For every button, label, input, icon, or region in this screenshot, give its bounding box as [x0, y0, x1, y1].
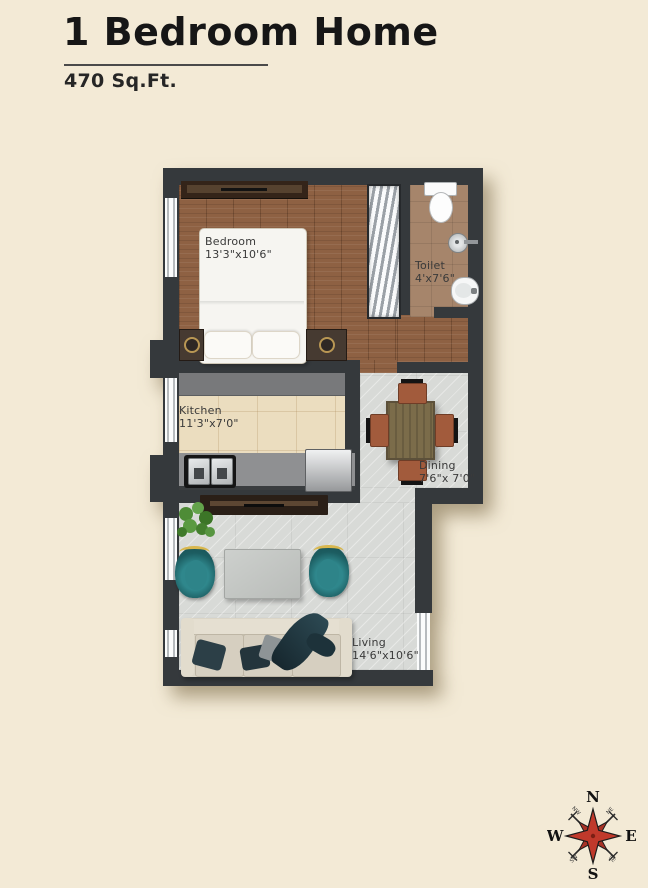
potted-plant: [176, 502, 220, 542]
compass-center: [591, 834, 595, 838]
compass-southeast-label: SE: [607, 855, 617, 865]
dining-chair-top: [398, 383, 427, 404]
dining-chair-left: [370, 414, 389, 447]
passage-floor: [397, 315, 468, 362]
wall-pillar-left-upper: [150, 340, 163, 378]
toilet-wc: [424, 182, 457, 223]
kitchen-label: Kitchen 11'3"x7'0": [179, 404, 239, 430]
room-name: Bedroom: [205, 235, 272, 248]
dining-table: [386, 401, 435, 460]
compass-east-label: E: [625, 827, 636, 845]
basin-bowl: [455, 283, 472, 298]
armchair-seat: [185, 560, 207, 590]
kitchen-appliance: [305, 449, 352, 492]
tv-screen: [244, 504, 284, 507]
compass-west-label: W: [547, 827, 565, 845]
wc-bowl: [429, 192, 453, 223]
wardrobe-shutter: [367, 184, 401, 319]
living-label: Living 14'6"x10'6": [352, 636, 419, 662]
plant-foliage: [176, 502, 220, 542]
armchair-seat: [317, 559, 339, 589]
kitchen-counter-top: [179, 373, 345, 396]
room-dims: 14'6"x10'6": [352, 649, 419, 662]
sofa: [181, 618, 352, 677]
sink-drain: [194, 468, 204, 479]
dining-label: Dining 7'6"x 7'0": [419, 459, 475, 485]
toilet-door-opening: [410, 307, 434, 317]
nightstand-knob: [319, 337, 335, 353]
armchair-right: [309, 546, 349, 597]
armchair-gold-trim: [179, 546, 210, 559]
basin-tap: [471, 288, 477, 294]
dresser-handle: [221, 188, 267, 191]
room-dims: 13'3"x10'6": [205, 248, 272, 261]
wall-passage-bottom: [397, 362, 468, 373]
wall-right-upper: [468, 168, 483, 504]
floor-plan-page: 1 Bedroom Home 470 Sq.Ft.: [0, 0, 648, 888]
compass-rose: N S W E NW NE SW SE: [547, 786, 639, 882]
nightstand-right: [306, 329, 347, 361]
wall-toilet-bottom: [434, 307, 468, 318]
sink-basin-left: [188, 458, 210, 485]
wall-right-lower: [415, 488, 432, 613]
chair-back-bar: [401, 379, 423, 383]
living-window-right: [417, 613, 430, 670]
room-dims: 4'x7'6": [415, 272, 455, 285]
room-dims: 7'6"x 7'0": [419, 472, 475, 485]
sofa-armrest-left: [181, 618, 194, 676]
toilet-label: Toilet 4'x7'6": [415, 259, 455, 285]
compass-south-label: S: [588, 865, 599, 882]
armchair-gold-trim: [313, 545, 344, 558]
sink-drain: [217, 468, 227, 479]
dining-chair-right: [435, 414, 454, 447]
bed-pillow-left: [204, 331, 252, 359]
compass-southwest-label: SW: [569, 854, 580, 865]
sink-basin-right: [211, 458, 233, 485]
chair-back-bar: [454, 418, 458, 443]
kitchen-window: [165, 378, 177, 442]
living-window-lower: [165, 630, 177, 657]
nightstand-left: [179, 329, 204, 361]
compass-north-label: N: [586, 788, 600, 806]
room-name: Dining: [419, 459, 475, 472]
floor-plan: Bedroom 13'3"x10'6" Toilet 4'x7'6" Kitch…: [163, 168, 483, 686]
wash-basin: [451, 277, 479, 305]
shower-arm: [464, 240, 478, 244]
room-name: Kitchen: [179, 404, 239, 417]
title-underline: [64, 64, 268, 66]
wall-pillar-left-lower: [150, 455, 163, 502]
chair-back-bar: [366, 418, 370, 443]
shower-dot: [455, 240, 459, 244]
nightstand-knob: [184, 337, 200, 353]
room-dims: 11'3"x7'0": [179, 417, 239, 430]
page-title: 1 Bedroom Home: [63, 10, 439, 54]
area-label: 470 Sq.Ft.: [64, 70, 177, 92]
dining-living-connector-floor: [360, 488, 415, 503]
bed-duvet-fold: [200, 301, 304, 305]
bed-pillow-right: [252, 331, 300, 359]
bedroom-dresser: [181, 181, 308, 199]
kitchen-sink: [184, 455, 236, 488]
coffee-table: [224, 549, 301, 599]
room-name: Living: [352, 636, 419, 649]
room-name: Toilet: [415, 259, 455, 272]
bedroom-label: Bedroom 13'3"x10'6": [205, 235, 272, 261]
armchair-left: [175, 547, 215, 598]
bedroom-window: [165, 198, 177, 277]
